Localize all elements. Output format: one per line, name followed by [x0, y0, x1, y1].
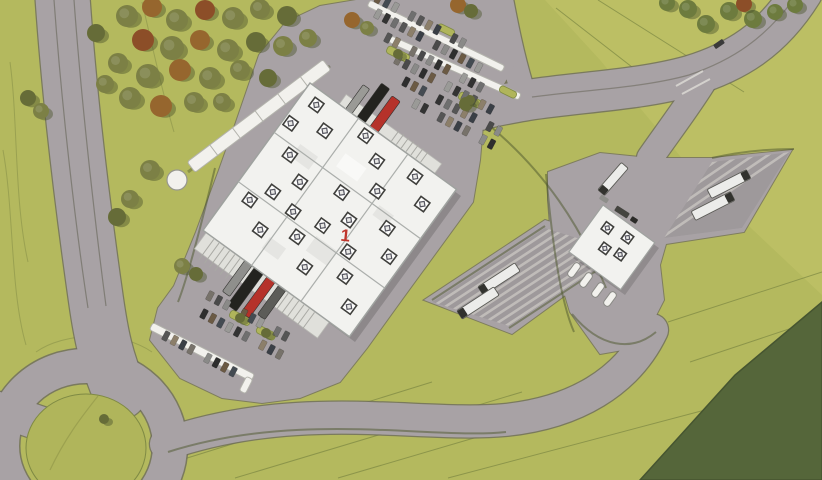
- white-circular-structure: [167, 170, 187, 190]
- site-plan-canvas: 1: [0, 0, 822, 480]
- site-plan-stage: 1: [0, 0, 822, 480]
- building-number-label: 1: [340, 226, 351, 246]
- label-layer: 1: [340, 226, 351, 246]
